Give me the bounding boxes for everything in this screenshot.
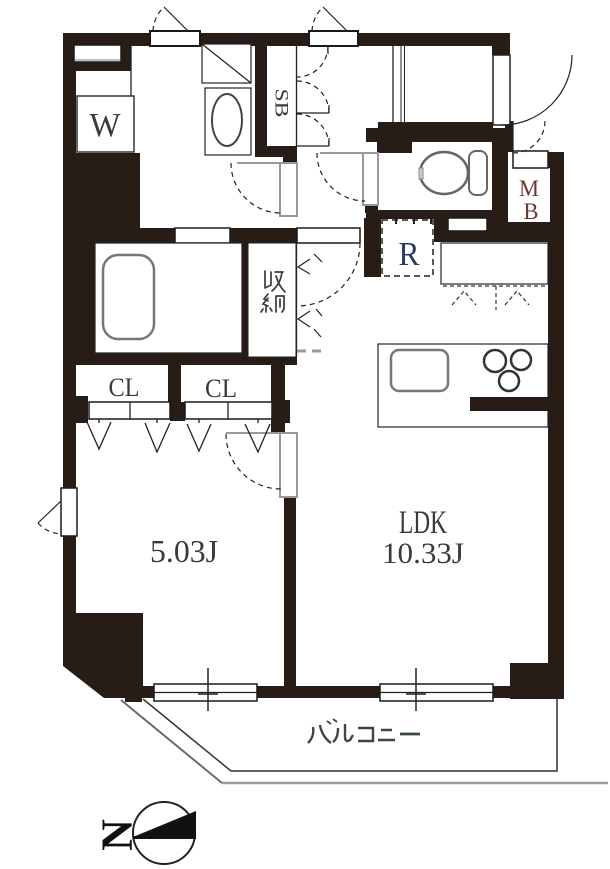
svg-text:B: B: [524, 199, 539, 224]
svg-text:CL: CL: [205, 374, 237, 403]
svg-text:R: R: [399, 236, 420, 273]
svg-text:10.33J: 10.33J: [382, 537, 464, 570]
svg-text:5.03J: 5.03J: [150, 533, 218, 569]
svg-text:LDK: LDK: [399, 505, 447, 541]
svg-text:SB: SB: [271, 89, 292, 118]
svg-text:M: M: [519, 176, 539, 201]
svg-text:N: N: [93, 819, 142, 851]
svg-text:CL: CL: [109, 373, 140, 402]
svg-text:W: W: [90, 107, 122, 144]
